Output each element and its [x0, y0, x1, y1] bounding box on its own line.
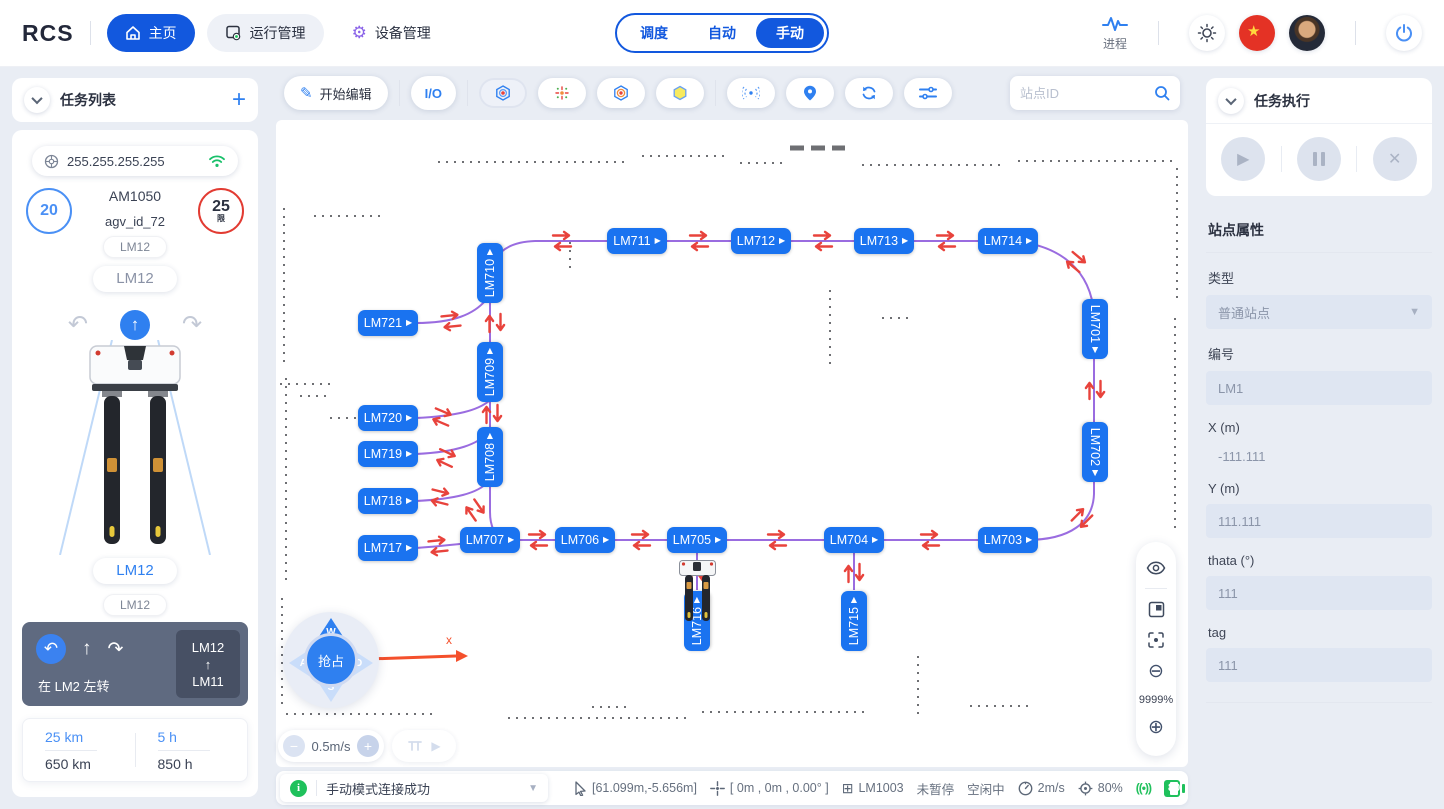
- station-label: LM715: [847, 607, 861, 645]
- segment-from: LM12: [192, 640, 225, 655]
- divider: [90, 21, 91, 45]
- station-label: LM711: [613, 234, 650, 248]
- signal-icon: ((•)): [1136, 781, 1151, 795]
- station-arrow-icon: ▶: [406, 414, 412, 422]
- speedometer-icon: [1018, 781, 1033, 796]
- station-search-input[interactable]: [1020, 86, 1146, 101]
- station-tag: LM12: [103, 236, 167, 258]
- play-button[interactable]: ▶: [1221, 137, 1265, 181]
- top-bar: RCS 主页 运行管理 ⚙ 设备管理 调度 自动 手动 进程 ★: [0, 0, 1444, 66]
- pause-state: 未暂停: [917, 779, 955, 798]
- divider: [1356, 146, 1357, 172]
- station-LM705[interactable]: LM705▶: [667, 527, 727, 553]
- divider: [1206, 702, 1432, 703]
- layer-scatter-button[interactable]: [538, 78, 586, 108]
- station-label: LM718: [364, 494, 402, 508]
- main-content: 任务列表 + 255.255.255.255 20 AM1050 agv_id_…: [0, 66, 1444, 809]
- station-LM714[interactable]: LM714▶: [978, 228, 1038, 254]
- speed-limit-suffix: 限: [217, 215, 225, 223]
- hours-stat: 5 h 850 h: [136, 729, 248, 772]
- station-LM709[interactable]: LM709▶: [477, 342, 503, 402]
- pointer-coordinates: [61.099m,-5.656m]: [574, 781, 697, 796]
- station-theta-value: 111: [1218, 586, 1238, 601]
- divider: [1206, 252, 1432, 253]
- filter-settings-button[interactable]: [904, 78, 952, 108]
- yellow-hexagon-icon: [672, 85, 688, 101]
- nav-devices-label: 设备管理: [375, 23, 431, 43]
- station-y-value: 111.111: [1218, 514, 1261, 529]
- pause-button[interactable]: [1297, 137, 1341, 181]
- speed-limit-gauge: 25 限: [198, 188, 244, 234]
- manual-joystick: W A D S 抢占: [283, 612, 379, 708]
- station-arrow-icon: ▶: [1026, 237, 1032, 245]
- sliders-icon: [919, 86, 937, 100]
- station-LM701[interactable]: LM701▶: [1082, 299, 1108, 359]
- pointer-coordinates-value: [61.099m,-5.656m]: [592, 781, 697, 795]
- center-focus-icon[interactable]: [1147, 631, 1165, 649]
- trip-distance: 25 km: [45, 729, 97, 751]
- stations-layer: LM711▶LM712▶LM713▶LM714▶LM710▶LM721▶LM70…: [270, 66, 1194, 809]
- speed-value: 2m/s: [1038, 781, 1065, 795]
- battery-indicator: 80: [1164, 780, 1180, 797]
- station-label: LM719: [364, 447, 402, 461]
- station-LM708[interactable]: LM708▶: [477, 427, 503, 487]
- divider: [1355, 21, 1356, 45]
- status-message-select[interactable]: i 手动模式连接成功 ▼: [280, 774, 548, 802]
- turn-left-button[interactable]: ↶: [68, 313, 88, 337]
- segment-to: LM11: [192, 674, 224, 689]
- turn-right-button[interactable]: ↷: [182, 313, 202, 337]
- next-station-tag: LM12: [103, 594, 167, 616]
- nav-operations-label: 运行管理: [250, 23, 306, 43]
- station-LM706[interactable]: LM706▶: [555, 527, 615, 553]
- station-arrow-icon: ▶: [406, 450, 412, 458]
- mode-tab-group: 调度 自动 手动: [615, 13, 829, 53]
- nav-instruction-text: 在 LM2 左转: [38, 676, 110, 695]
- turn-right-indicator: ↷: [108, 638, 124, 661]
- station-arrow-icon: ▶: [406, 497, 412, 505]
- station-x-value: -111.111: [1206, 443, 1432, 466]
- field-label-tag: tag: [1208, 625, 1430, 640]
- station-arrow-icon: ▶: [1091, 470, 1099, 476]
- status-bar: i 手动模式连接成功 ▼ [61.099m,-5.656m] [ 0m , 0m…: [276, 771, 1188, 805]
- cancel-button[interactable]: ✕: [1373, 137, 1417, 181]
- tab-dispatch[interactable]: 调度: [620, 18, 688, 48]
- task-execution-panel: 任务执行 ▶ ✕ 站点属性 类型 普通站点 ▼ 编号 LM1 X (m) -11…: [1194, 66, 1444, 809]
- fork-icon: [407, 739, 423, 753]
- tab-manual[interactable]: 手动: [756, 18, 824, 48]
- map-robot-icon[interactable]: [679, 560, 716, 626]
- divider: [1158, 21, 1159, 45]
- navigation-instruction-card: ↶ ↑ ↷ 在 LM2 左转 LM12 ↑ LM11: [22, 622, 248, 706]
- station-label: LM721: [364, 316, 402, 330]
- location-pin-icon: [803, 85, 817, 101]
- zoom-in-button[interactable]: ⊕: [1148, 718, 1164, 737]
- manual-direction-controls: ↶ ↑ ↷: [12, 310, 258, 340]
- station-LM703[interactable]: LM703▶: [978, 527, 1038, 553]
- station-label: LM703: [984, 533, 1022, 547]
- manual-speed-value: 0.5m/s: [311, 739, 350, 754]
- station-arrow-icon: ▶: [902, 237, 908, 245]
- helm-icon: [44, 154, 59, 169]
- locate-icon: [1078, 781, 1093, 796]
- odometer-card: 25 km 650 km 5 h 850 h: [22, 718, 248, 782]
- reliability-value: 80%: [1098, 781, 1123, 795]
- station-LM721[interactable]: LM721▶: [358, 310, 418, 336]
- station-arrow-icon: ▶: [486, 249, 494, 255]
- task-state: 空闲中: [967, 779, 1005, 798]
- station-label: LM706: [561, 533, 599, 547]
- up-arrow-icon: ↑: [205, 657, 212, 672]
- start-edit-label: 开始编辑: [320, 84, 372, 103]
- layer-ring-node-button[interactable]: [597, 78, 645, 108]
- task-list-panel: 任务列表 + 255.255.255.255 20 AM1050 agv_id_…: [0, 66, 270, 809]
- robot-pose: [ 0m , 0m , 0.00° ]: [710, 781, 829, 796]
- station-arrow-icon: ▶: [715, 536, 721, 544]
- speed-increase-button[interactable]: +: [357, 735, 379, 757]
- station-LM711[interactable]: LM711▶: [607, 228, 667, 254]
- chevron-down-icon: ▼: [528, 783, 538, 794]
- station-label: LM705: [673, 533, 711, 547]
- station-tag-field[interactable]: 111: [1206, 648, 1432, 682]
- station-type-value: 普通站点: [1218, 303, 1270, 322]
- station-label: LM712: [737, 234, 775, 248]
- chevron-down-icon: ▼: [1409, 306, 1420, 318]
- station-LM717[interactable]: LM717▶: [358, 535, 418, 561]
- eye-icon[interactable]: [1146, 561, 1166, 575]
- station-LM719[interactable]: LM719▶: [358, 441, 418, 467]
- io-button[interactable]: I/O: [411, 76, 456, 110]
- cursor-icon: [574, 781, 587, 796]
- station-label: LM709: [483, 358, 497, 396]
- map-toolbar: ✎ 开始编辑 I/O: [270, 66, 1194, 120]
- collapse-button[interactable]: [24, 87, 50, 113]
- station-properties-title: 站点属性: [1206, 220, 1432, 240]
- station-label: LM701: [1088, 305, 1102, 343]
- starburst-icon: [554, 85, 570, 101]
- layer-area-button[interactable]: [656, 78, 704, 108]
- station-search: [1010, 76, 1180, 110]
- station-label: LM714: [984, 234, 1022, 248]
- station-arrow-icon: ▶: [872, 536, 878, 544]
- nav-operations[interactable]: 运行管理: [207, 14, 324, 52]
- speed-limit-value: 25: [212, 199, 230, 215]
- station-label: LM710: [483, 259, 497, 297]
- station-label: LM702: [1088, 428, 1102, 466]
- zoom-level: 9999%: [1139, 694, 1173, 706]
- robot-pose-value: [ 0m , 0m , 0.00° ]: [730, 781, 829, 795]
- nav-home[interactable]: 主页: [107, 14, 195, 52]
- fork-play-icon: ▶: [431, 739, 440, 753]
- speed-readout: 2m/s: [1018, 781, 1065, 796]
- station-LM707[interactable]: LM707▶: [460, 527, 520, 553]
- station-LM704[interactable]: LM704▶: [824, 527, 884, 553]
- chevron-down-icon: [31, 93, 42, 104]
- station-arrow-icon: ▶: [1091, 347, 1099, 353]
- battery-tip: [1182, 784, 1185, 793]
- station-type-select[interactable]: 普通站点 ▼: [1206, 295, 1432, 329]
- station-arrow-icon: ▶: [486, 433, 494, 439]
- vehicle-ip: 255.255.255.255: [67, 154, 165, 169]
- status-message: 手动模式连接成功: [326, 779, 519, 798]
- hexagon-node-icon: [495, 85, 511, 101]
- refresh-icon: [861, 85, 877, 101]
- total-hours: 850 h: [158, 756, 248, 772]
- reliability-readout: 80%: [1078, 781, 1123, 796]
- topbar-right-group: 进程 ★: [1102, 15, 1422, 52]
- station-label: LM713: [860, 234, 898, 248]
- station-number-field[interactable]: LM1: [1206, 371, 1432, 405]
- field-label-x: X (m): [1208, 420, 1430, 435]
- station-LM712[interactable]: LM712▶: [731, 228, 791, 254]
- current-station-value: LM1003: [858, 781, 903, 795]
- divider: [1145, 588, 1167, 589]
- station-label: LM717: [364, 541, 402, 555]
- current-station-tag: LM12: [93, 558, 177, 584]
- battery-slot: [1170, 782, 1178, 795]
- station-arrow-icon: ▶: [779, 237, 785, 245]
- field-label-number: 编号: [1208, 344, 1430, 363]
- add-task-button[interactable]: +: [232, 88, 246, 112]
- layer-radar-button[interactable]: [727, 78, 775, 108]
- app-logo: RCS: [22, 20, 74, 47]
- power-icon: [1394, 23, 1414, 43]
- station-label: LM708: [483, 443, 497, 481]
- straight-indicator: ↑: [82, 638, 92, 660]
- wifi-icon: [208, 154, 226, 168]
- station-LM710[interactable]: LM710▶: [477, 243, 503, 303]
- station-label: LM720: [364, 411, 402, 425]
- chevron-down-icon: [1225, 93, 1236, 104]
- collapse-button[interactable]: [1218, 88, 1244, 114]
- field-label-y: Y (m): [1208, 481, 1430, 496]
- info-icon: i: [290, 780, 307, 797]
- divider: [399, 80, 400, 106]
- task-list-title: 任务列表: [60, 90, 116, 110]
- crosshair-icon: [710, 781, 725, 796]
- process-label: 进程: [1103, 35, 1127, 52]
- search-icon[interactable]: [1154, 85, 1170, 101]
- current-station: ⊞ LM1003: [842, 780, 904, 797]
- language-flag-button[interactable]: ★: [1239, 15, 1275, 51]
- power-button[interactable]: [1386, 15, 1422, 51]
- field-label-theta: thata (°): [1208, 553, 1430, 568]
- speed-decrease-button[interactable]: −: [283, 735, 305, 757]
- fork-control[interactable]: ▶: [392, 730, 456, 762]
- minimap-icon[interactable]: [1148, 601, 1165, 618]
- station-LM715[interactable]: LM715▶: [841, 591, 867, 651]
- station-LM702[interactable]: LM702▶: [1082, 422, 1108, 482]
- station-LM713[interactable]: LM713▶: [854, 228, 914, 254]
- divider: [467, 80, 468, 106]
- current-speed-gauge: 20: [26, 188, 72, 234]
- tab-auto[interactable]: 自动: [688, 18, 756, 48]
- station-arrow-icon: ▶: [603, 536, 609, 544]
- divider: [316, 780, 317, 796]
- concentric-node-icon: [613, 85, 629, 101]
- pause-icon: [1313, 152, 1317, 166]
- flag-star-icon: ★: [1247, 22, 1260, 40]
- task-list-header: 任务列表 +: [12, 78, 258, 122]
- gear-icon: ⚙: [352, 23, 367, 43]
- start-edit-button[interactable]: ✎ 开始编辑: [284, 76, 388, 110]
- pencil-icon: ✎: [300, 84, 313, 102]
- field-label-type: 类型: [1208, 268, 1430, 287]
- vehicle-card: 255.255.255.255 20 AM1050 agv_id_72 25 限…: [12, 130, 258, 797]
- layer-station-node-button[interactable]: [479, 78, 527, 108]
- station-arrow-icon: ▶: [486, 348, 494, 354]
- radar-icon: [742, 85, 760, 101]
- forklift-top-view: [42, 340, 228, 555]
- manual-speed-control: − 0.5m/s +: [278, 730, 384, 762]
- execution-controls: ▶ ✕: [1206, 124, 1432, 194]
- zoom-out-button[interactable]: ⊖: [1148, 662, 1164, 681]
- route-segment-box: LM12 ↑ LM11: [176, 630, 240, 698]
- waveform-icon: [1102, 15, 1128, 33]
- station-tag-value: 111: [1218, 658, 1238, 673]
- refresh-button[interactable]: [845, 78, 893, 108]
- station-LM718[interactable]: LM718▶: [358, 488, 418, 514]
- layer-pin-button[interactable]: [786, 78, 834, 108]
- station-arrow-icon: ▶: [655, 237, 661, 245]
- divider: [1281, 146, 1282, 172]
- nav-home-label: 主页: [149, 23, 177, 43]
- distance-stat: 25 km 650 km: [23, 729, 135, 772]
- turn-left-indicator: ↶: [36, 634, 66, 664]
- station-tag: LM12: [93, 266, 177, 292]
- theme-toggle[interactable]: [1189, 15, 1225, 51]
- vehicle-agv-id: agv_id_72: [72, 214, 198, 229]
- total-distance: 650 km: [45, 756, 135, 772]
- nav-devices[interactable]: ⚙ 设备管理: [334, 14, 449, 52]
- station-theta-field[interactable]: 111: [1206, 576, 1432, 610]
- trip-hours: 5 h: [158, 729, 210, 751]
- forward-button[interactable]: ↑: [120, 310, 150, 340]
- station-y-field[interactable]: 111.111: [1206, 504, 1432, 538]
- current-speed-value: 20: [40, 202, 58, 220]
- task-execution-card: 任务执行 ▶ ✕: [1206, 78, 1432, 196]
- station-arrow-icon: ▶: [1026, 536, 1032, 544]
- vehicle-ip-pill[interactable]: 255.255.255.255: [32, 146, 238, 176]
- divider: [715, 80, 716, 106]
- vehicle-model: AM1050: [72, 188, 198, 204]
- home-icon: [125, 25, 141, 41]
- monitor-icon: [225, 25, 242, 41]
- process-button[interactable]: 进程: [1102, 15, 1128, 52]
- station-LM720[interactable]: LM720▶: [358, 405, 418, 431]
- station-number-value: LM1: [1218, 381, 1243, 396]
- user-avatar[interactable]: [1289, 15, 1325, 51]
- task-execution-header: 任务执行: [1206, 78, 1432, 124]
- sun-icon: [1197, 23, 1217, 43]
- seize-control-button[interactable]: 抢占: [304, 633, 358, 687]
- station-arrow-icon: ▶: [850, 597, 858, 603]
- station-arrow-icon: ▶: [406, 544, 412, 552]
- task-execution-title: 任务执行: [1254, 91, 1310, 111]
- pause-icon: [1321, 152, 1325, 166]
- grid-plus-icon: ⊞: [842, 780, 854, 797]
- station-label: LM707: [466, 533, 504, 547]
- station-label: LM704: [830, 533, 868, 547]
- station-arrow-icon: ▶: [406, 319, 412, 327]
- map-area: ✎ 开始编辑 I/O: [270, 66, 1194, 809]
- map-view-tools: ⊖ 9999% ⊕: [1136, 542, 1176, 756]
- station-arrow-icon: ▶: [508, 536, 514, 544]
